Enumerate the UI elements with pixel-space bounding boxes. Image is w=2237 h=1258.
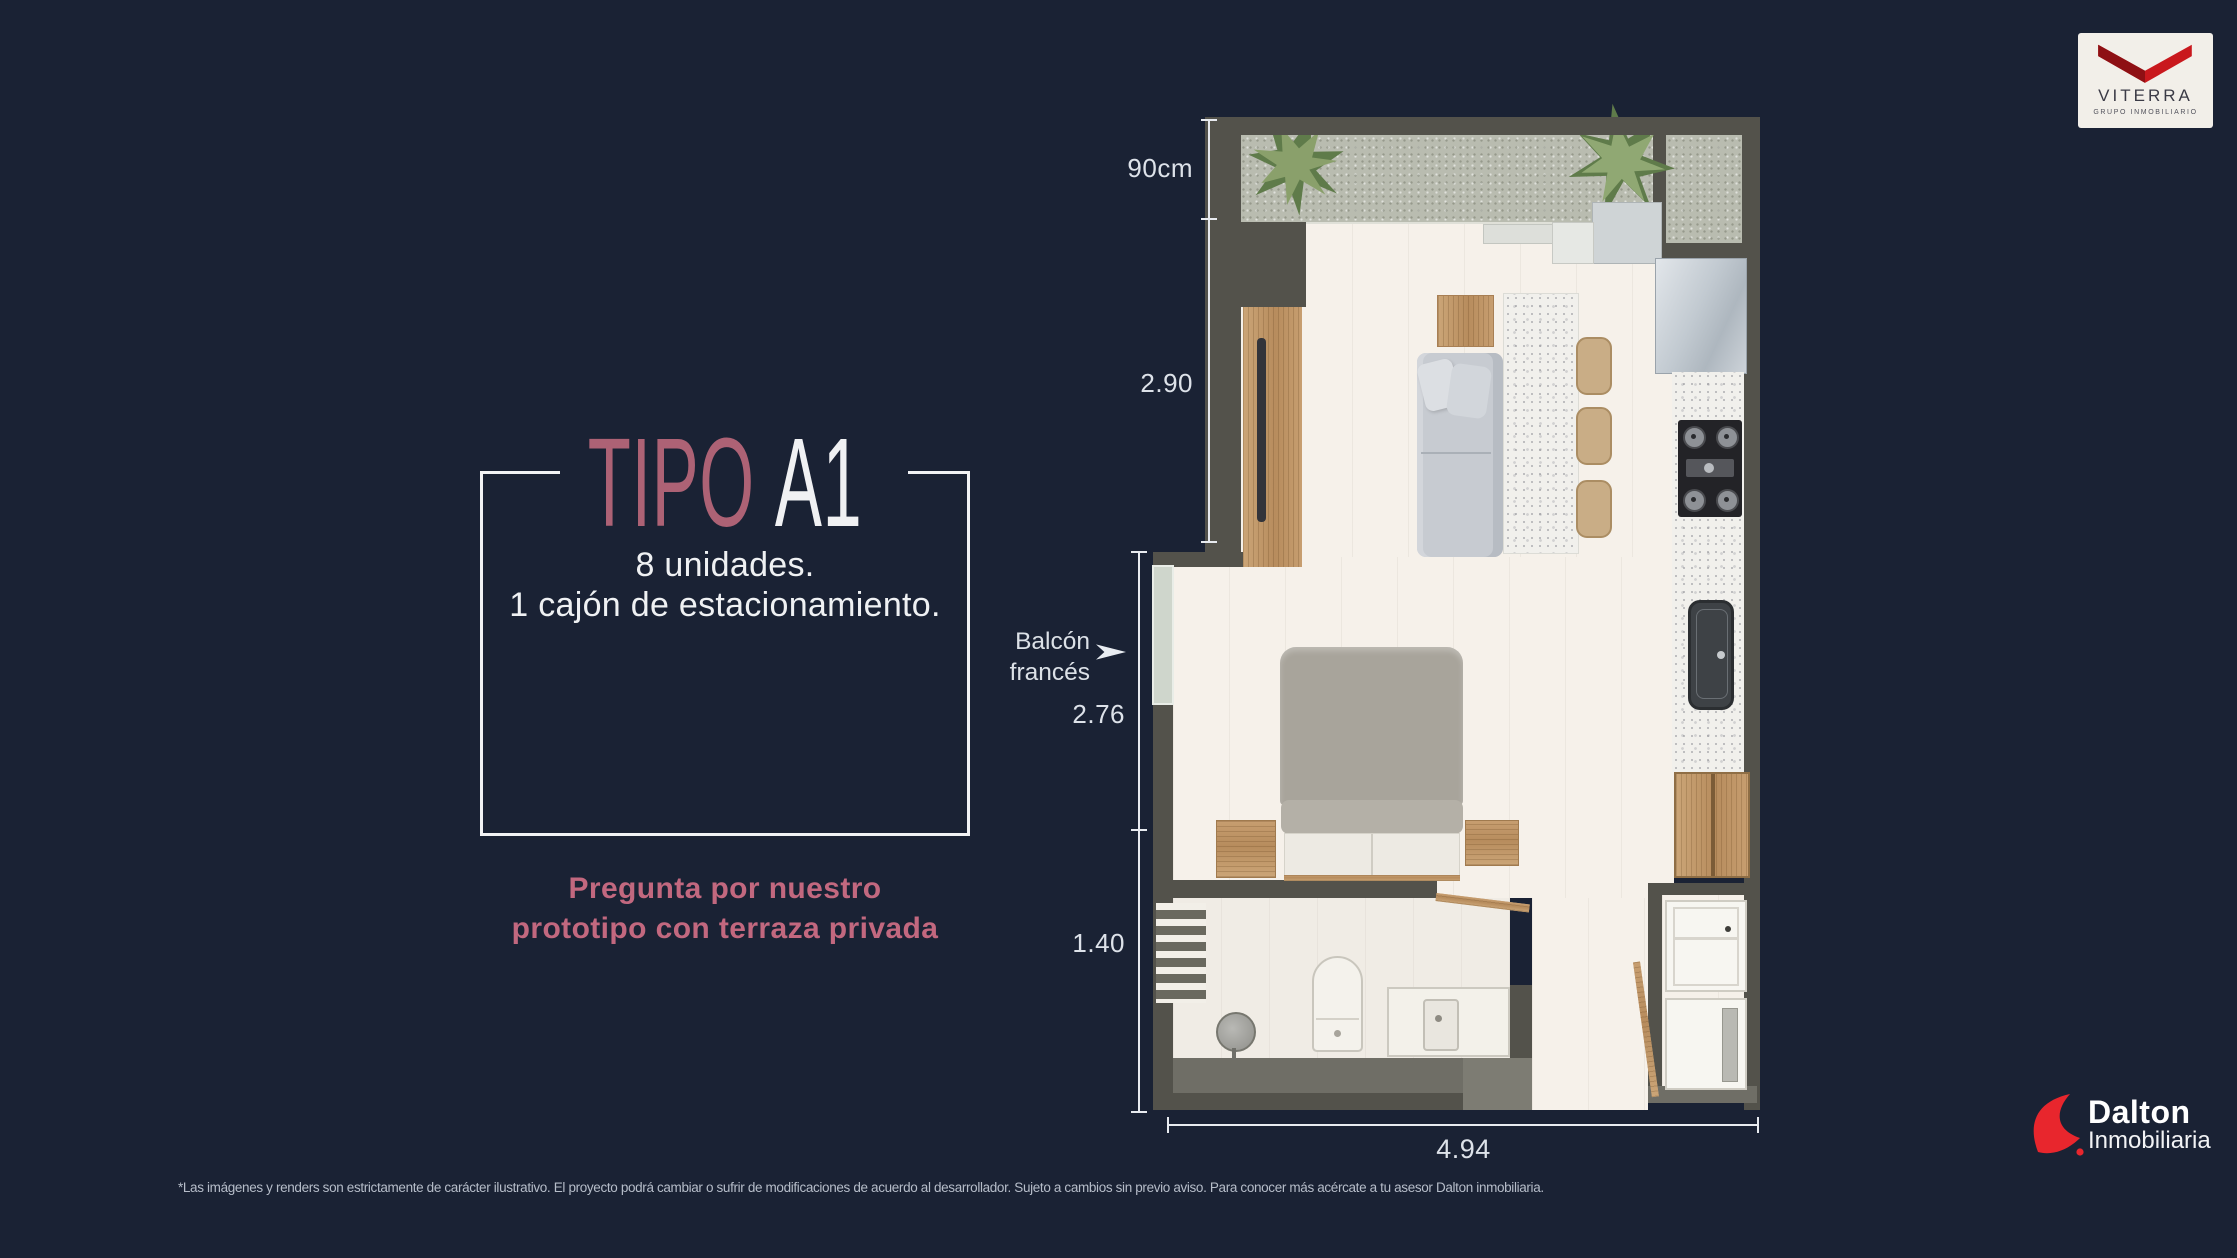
- balcony-label-line1: Balcón: [960, 626, 1090, 657]
- dim-tick: [1201, 541, 1217, 543]
- dalton-subtitle: Inmobiliaria: [2088, 1127, 2211, 1155]
- viterra-name: VITERRA: [2078, 86, 2213, 106]
- wall-top: [1205, 117, 1760, 135]
- terrace-patio-gravel: [1666, 130, 1742, 243]
- floorplan: 90cm 2.90 2.76 1.40 4.94 Balcón francés: [0, 0, 2237, 1258]
- bath-shelves: [1156, 903, 1206, 1003]
- dim-line-vertical-upper: [1208, 120, 1210, 543]
- promo-line1: Pregunta por nuestro: [425, 872, 1025, 906]
- bed-pillow-band: [1281, 800, 1463, 834]
- dalton-sail-icon: [2024, 1092, 2084, 1158]
- counter-steel: [1655, 258, 1747, 374]
- sofa-pillow: [1446, 362, 1493, 419]
- bed-sheet-split: [1371, 834, 1373, 876]
- wall-bath-bottom-thick: [1173, 1058, 1463, 1094]
- shower-stand: [1232, 1048, 1236, 1060]
- wall-bedroom-bath: [1153, 880, 1437, 898]
- parking-line: 1 cajón de estacionamiento.: [480, 586, 970, 625]
- dim-tick: [1131, 829, 1147, 831]
- tv-panel: [1257, 338, 1266, 522]
- dim-tick: [1131, 1111, 1147, 1113]
- balcony-callout: Balcón francés: [960, 626, 1090, 688]
- toilet: [1312, 956, 1363, 1052]
- sink-faucet: [1717, 651, 1725, 659]
- dim-label-bedroom: 2.76: [995, 699, 1125, 730]
- dim-label-terrace: 90cm: [1063, 153, 1193, 184]
- washer-lid: [1673, 907, 1739, 939]
- closet-right: [1674, 772, 1750, 878]
- dalton-logo: Dalton Inmobiliaria: [2024, 1092, 2224, 1162]
- bar-stool: [1576, 480, 1612, 538]
- dim-tick: [1201, 119, 1217, 121]
- brochure-page: { "page": { "background": "#1a2234" }, "…: [0, 0, 2237, 1258]
- side-table: [1437, 295, 1494, 347]
- stove-burner: [1683, 426, 1706, 449]
- washer-upper: [1665, 900, 1747, 992]
- dim-label-living: 2.90: [1063, 368, 1193, 399]
- kitchen-cabinet: [1552, 222, 1594, 264]
- nightstand: [1216, 820, 1276, 878]
- stove-burner: [1716, 489, 1739, 512]
- wall-notch: [1240, 222, 1306, 307]
- dim-tick: [1131, 551, 1147, 553]
- hallway-floor: [1532, 898, 1648, 1110]
- dim-tick: [1167, 1117, 1169, 1133]
- closet-divider: [1711, 774, 1715, 876]
- washer-knob: [1725, 926, 1731, 932]
- stove-burner: [1716, 426, 1739, 449]
- washer-lower: [1665, 998, 1747, 1090]
- stove-knob-strip: [1686, 459, 1734, 477]
- bed-base: [1284, 875, 1460, 881]
- vanity: [1387, 987, 1510, 1057]
- kitchen-island: [1503, 293, 1579, 554]
- arrow-right-icon: [1096, 640, 1126, 664]
- stove-burner: [1683, 489, 1706, 512]
- title-space: [755, 412, 775, 553]
- french-balcony-door: [1152, 565, 1174, 705]
- stove-knob: [1704, 463, 1714, 473]
- dalton-name: Dalton: [2088, 1094, 2191, 1131]
- nightstand: [1465, 820, 1519, 866]
- title-word: TIPO: [588, 412, 755, 553]
- viterra-tagline: GRUPO INMOBILIARIO: [2078, 109, 2213, 116]
- dim-tick: [1757, 1117, 1759, 1133]
- viterra-logo: VITERRA GRUPO INMOBILIARIO: [2078, 33, 2213, 128]
- toilet-flush-dot: [1334, 1030, 1341, 1037]
- dim-line-horizontal: [1168, 1124, 1759, 1126]
- washer-door: [1673, 938, 1739, 986]
- promo-line2: prototipo con terraza privada: [425, 912, 1025, 946]
- bed-mattress: [1280, 647, 1463, 805]
- stove: [1678, 420, 1742, 517]
- toilet-tank-line: [1316, 1018, 1359, 1020]
- sofa-seam: [1421, 452, 1491, 454]
- units-line: 8 unidades.: [480, 546, 970, 585]
- dim-tick: [1201, 218, 1217, 220]
- wall-bath-bottom-light: [1463, 1058, 1532, 1110]
- disclaimer-text: *Las imágenes y renders son estrictament…: [178, 1180, 1478, 1195]
- bar-stool: [1576, 337, 1612, 395]
- shower-head: [1216, 1012, 1256, 1052]
- wall-left-upper: [1205, 117, 1241, 557]
- bar-stool: [1576, 407, 1612, 465]
- vanity-faucet: [1435, 1015, 1442, 1022]
- sofa: [1417, 353, 1503, 557]
- media-console: [1243, 307, 1302, 567]
- wall-bottom-dark: [1153, 1093, 1463, 1110]
- dim-line-vertical-lower: [1138, 552, 1140, 1113]
- washer-control-strip: [1722, 1008, 1738, 1082]
- wall-laundry-top: [1648, 883, 1748, 895]
- page-title: TIPO A1: [480, 420, 970, 546]
- viterra-chevron-icon: [2093, 41, 2197, 85]
- bed-sheet: [1284, 833, 1460, 877]
- fridge: [1592, 202, 1662, 264]
- vanity-sink: [1423, 999, 1459, 1051]
- balcony-label-line2: francés: [960, 657, 1090, 688]
- kitchen-sink: [1688, 600, 1734, 710]
- title-variant: A1: [775, 412, 862, 553]
- dim-label-width: 4.94: [1168, 1134, 1759, 1165]
